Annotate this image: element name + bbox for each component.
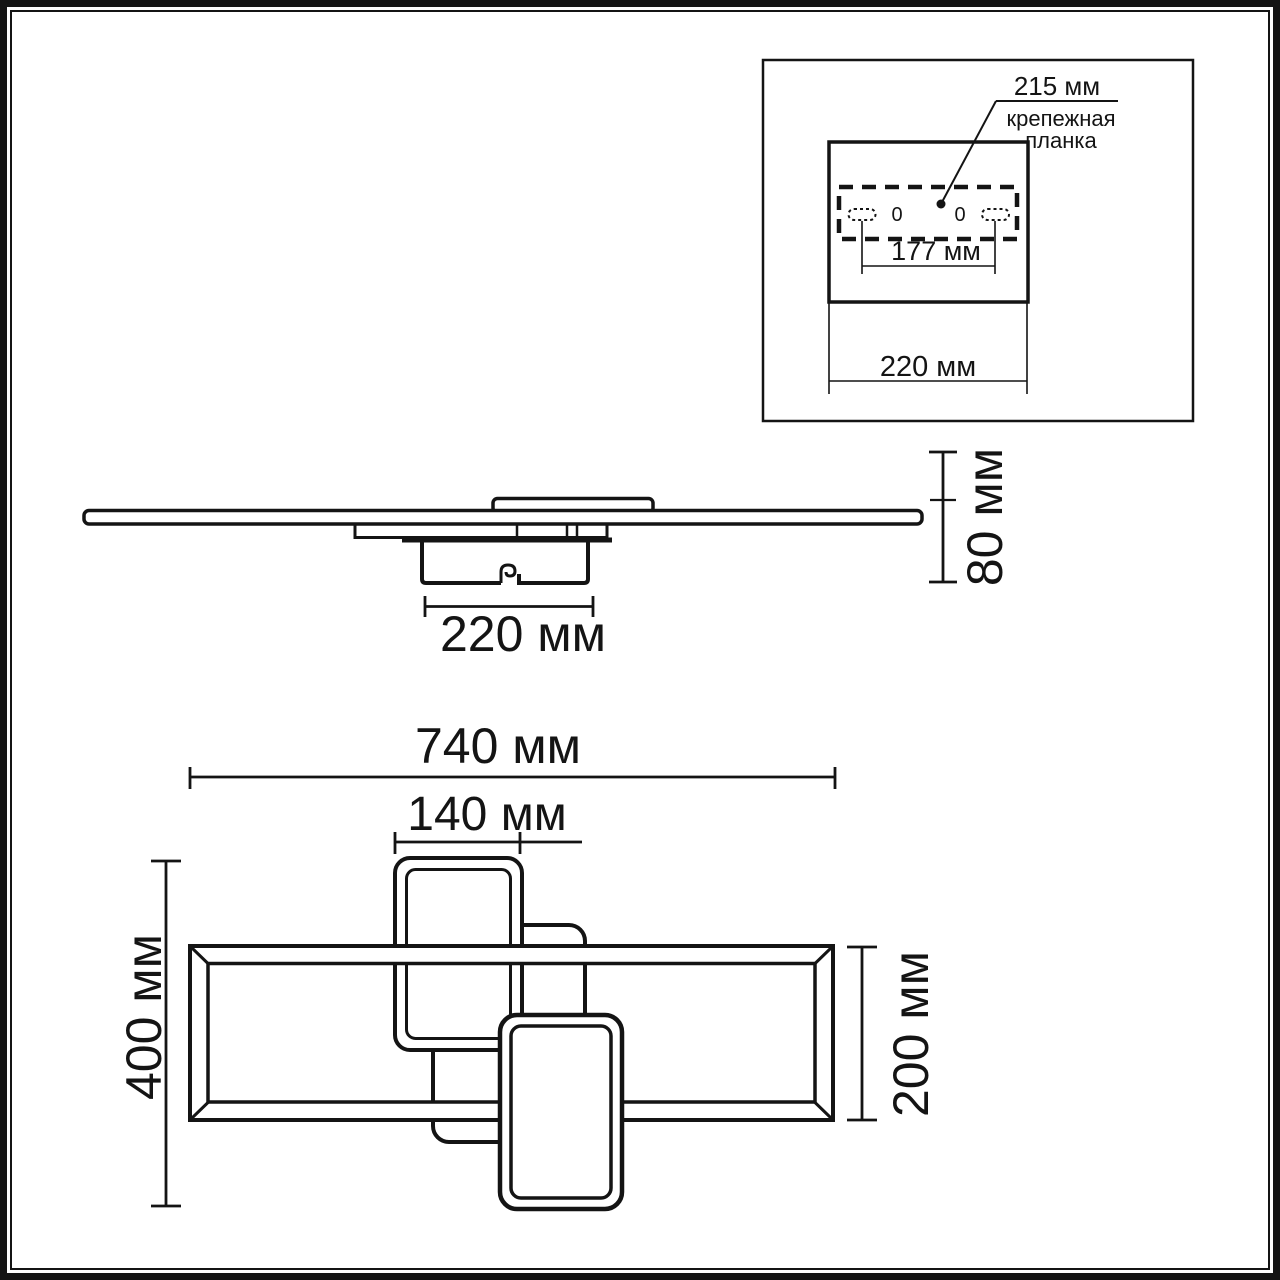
frame-height-label: 200 мм — [883, 951, 939, 1117]
canopy-width-label: 220 мм — [880, 351, 976, 383]
plate-width-label: 215 мм — [1014, 71, 1100, 101]
hole-spacing-label: 177 мм — [891, 236, 981, 266]
hole-label-left: 0 — [891, 204, 902, 226]
technical-drawing-page: 0 0 215 мм крепежная планка 177 мм 220 м… — [0, 0, 1280, 1280]
canopy-body-right — [519, 540, 588, 583]
dim-740: 740 мм — [190, 718, 835, 789]
overall-width-label: 740 мм — [415, 718, 581, 774]
side-lamp-panel — [84, 511, 922, 525]
part-label-line2: планка — [1025, 128, 1097, 153]
dim-220-side: 220 мм — [425, 596, 606, 662]
mounting-bar-dashed — [839, 187, 1017, 239]
side-mount-plate — [355, 524, 607, 538]
dim-177: 177 мм — [862, 221, 995, 274]
screw-slot-left — [849, 209, 876, 220]
canopy-width-label: 220 мм — [440, 606, 606, 662]
hole-label-right: 0 — [954, 204, 965, 226]
dim-80: 80 мм — [929, 448, 1013, 586]
top-view: 740 мм 140 мм 400 мм 200 мм — [116, 718, 939, 1209]
overall-height-label: 400 мм — [116, 934, 172, 1100]
canopy-clip-curl — [501, 565, 515, 583]
side-view: 220 мм 80 мм — [84, 448, 1013, 662]
lower-ring-outer — [500, 1015, 622, 1209]
dim-200: 200 мм — [847, 947, 939, 1120]
canopy-box — [829, 142, 1028, 302]
dim-220-inset: 220 мм — [829, 303, 1027, 394]
small-ring-width-label: 140 мм — [407, 788, 566, 841]
dim-400: 400 мм — [116, 861, 181, 1206]
dim-140: 140 мм — [395, 788, 582, 854]
drawing-canvas: 0 0 215 мм крепежная планка 177 мм 220 м… — [0, 0, 1280, 1280]
screw-slot-right — [982, 209, 1009, 220]
height-label: 80 мм — [957, 448, 1013, 586]
mounting-inset: 0 0 215 мм крепежная планка 177 мм 220 м… — [763, 60, 1193, 421]
canopy-body-left — [422, 540, 501, 583]
